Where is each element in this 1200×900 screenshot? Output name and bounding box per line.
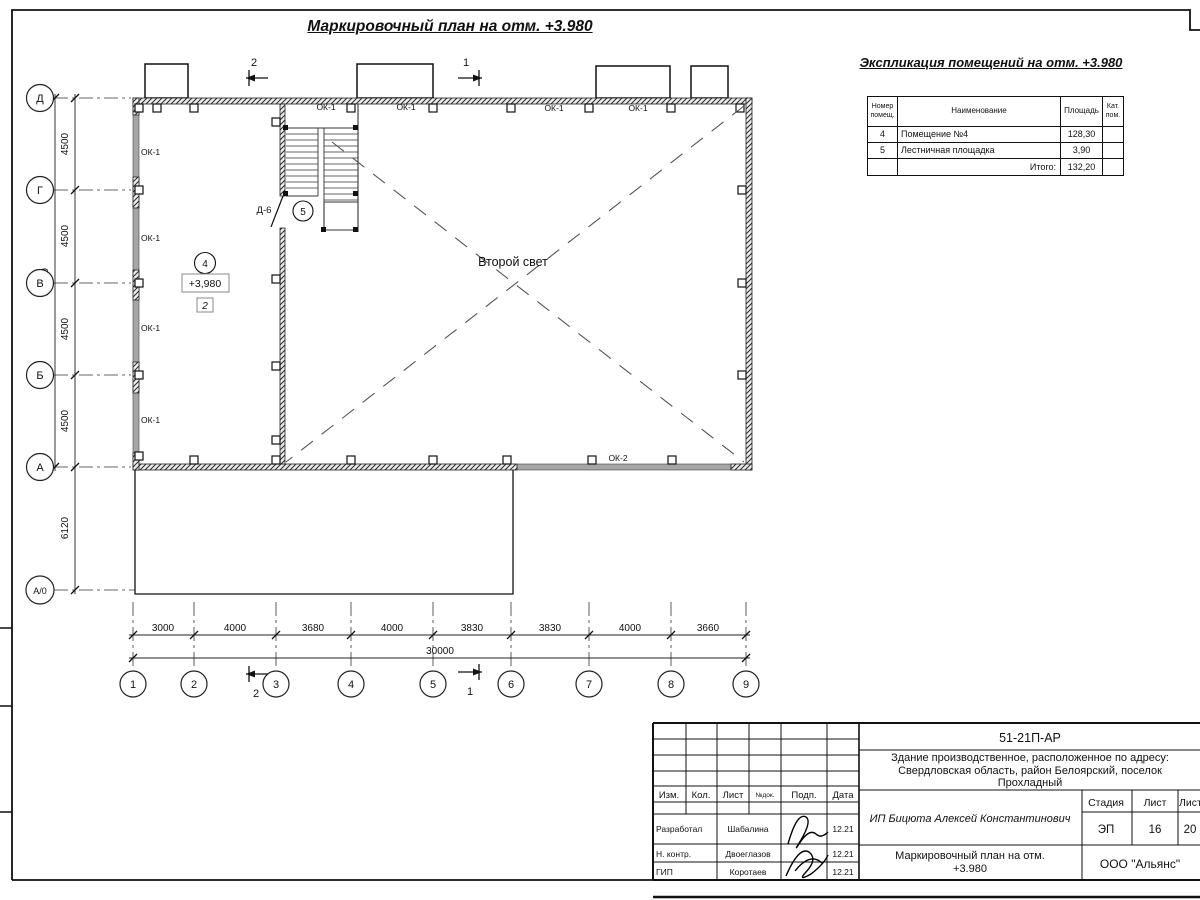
dim-col: 4000 — [224, 623, 247, 634]
table-cell — [1103, 127, 1123, 143]
doc-number: 51-21П-АР — [999, 731, 1061, 745]
ok1-label: ОК-1 — [141, 323, 160, 333]
stamp-col-ndok: №док. — [755, 792, 774, 799]
explication-table: Номер помещ. Наименование Площадь Кат. п… — [867, 96, 1124, 176]
stamp-col-podp: Подп. — [791, 790, 816, 801]
axis-col-label: 7 — [586, 679, 592, 691]
dim-col: 3680 — [302, 623, 325, 634]
stamp-headers: Изм. Кол. Лист №док. Подп. Дата — [659, 790, 854, 801]
axis-col-label: 1 — [130, 679, 136, 691]
signature-scribbles — [786, 816, 828, 877]
dim-6120: 6120 — [60, 516, 71, 539]
axis-col-label: 2 — [191, 679, 197, 691]
dim-4500: 4500 — [60, 224, 71, 247]
table-cell: 3,90 — [1061, 143, 1103, 159]
sheet-label: Лист — [1144, 797, 1167, 809]
elevation-mark: +3,980 — [189, 278, 222, 290]
axis-row-label: В — [36, 278, 43, 290]
ok1-label: ОК-1 — [141, 415, 160, 425]
stage-label: Стадия — [1088, 797, 1124, 809]
table-cell: Лестничная площадка — [898, 143, 1061, 159]
explication-title: Экспликация помещений на отм. +3.980 — [845, 55, 1137, 70]
dim-4500: 4500 — [60, 317, 71, 340]
stair-steps — [286, 134, 358, 200]
axis-row-label: Д — [36, 93, 44, 105]
door-leaf — [271, 196, 283, 227]
table-cell — [1103, 143, 1123, 159]
col-header-cat: Кат. пом. — [1103, 97, 1123, 127]
door-mark-label: Д-6 — [257, 205, 272, 216]
roof-projections — [145, 64, 728, 98]
stamp-col-list: Лист — [723, 790, 744, 801]
sheet-value: 16 — [1149, 824, 1162, 836]
signer-role: ГИП — [656, 867, 673, 877]
project-address: Здание производственное, расположенное п… — [880, 752, 1180, 790]
axis-col-label: 6 — [508, 679, 514, 691]
section2-label: 2 — [251, 57, 257, 69]
client-name: ИП Бицюта Алексей Константинович — [870, 813, 1071, 825]
dim-col: 4000 — [619, 623, 642, 634]
signer-name: Шабалина — [727, 824, 768, 834]
drawing-sheet: Второй свет ОК-1 ОК-1 ОК-1 ОК-1 ОК-1 ОК-… — [0, 0, 1200, 900]
table-cell: 5 — [868, 143, 898, 159]
total-label: Итого: — [898, 159, 1061, 175]
signer-date: 12.21 — [832, 849, 854, 859]
axis-bubbles-rows: Д Г В Б А А/0 — [26, 85, 54, 605]
axis-col-label: 8 — [668, 679, 674, 691]
dim-4500: 4500 — [60, 409, 71, 432]
dimension-lines — [55, 94, 750, 658]
lower-extension-outline — [135, 470, 513, 594]
col-header-area: Площадь — [1061, 97, 1103, 127]
signer-name: Двоеглазов — [725, 849, 771, 859]
ok1-label: ОК-1 — [544, 103, 563, 113]
signer-rows: Разработал Шабалина 12.21 Н. контр. Двое… — [656, 824, 854, 877]
dim-col: 3830 — [461, 623, 484, 634]
axis-lines — [54, 98, 746, 670]
axis-row-label: Г — [37, 185, 43, 197]
signer-role: Н. контр. — [656, 849, 691, 859]
stamp-col-data: Дата — [832, 790, 854, 801]
company-name: ООО "Альянс" — [1100, 857, 1180, 871]
ok1-label: ОК-1 — [628, 103, 647, 113]
axis-col-label: 9 — [743, 679, 749, 691]
sheets-value: 20 — [1184, 824, 1197, 836]
table-cell — [1103, 159, 1123, 175]
signer-date: 12.21 — [832, 824, 854, 834]
drawing-title: Маркировочный план на отм. +3.980 — [882, 850, 1058, 876]
table-cell: 4 — [868, 127, 898, 143]
stamp-col-izm: Изм. — [659, 790, 679, 801]
dim-4500: 4500 — [60, 132, 71, 155]
room5-mark: 5 — [293, 201, 313, 221]
stamp-col-kol: Кол. — [692, 790, 711, 801]
section1-label: 1 — [467, 686, 473, 698]
room4-number: 4 — [202, 259, 208, 270]
ok1-label: ОК-1 — [141, 147, 160, 157]
col-header-num: Номер помещ. — [868, 97, 898, 127]
ok1-label: ОК-1 — [316, 102, 335, 112]
second-light-label: Второй свет — [478, 255, 548, 269]
dimension-labels: 4500 4500 4500 4500 18000 6120 3000 4000… — [40, 132, 720, 657]
ok1-label: ОК-1 — [396, 102, 415, 112]
axis-row-label: А — [36, 462, 44, 474]
section1-label: 1 — [463, 57, 469, 69]
dim-col: 3660 — [697, 623, 720, 634]
dimension-ticks — [51, 94, 750, 662]
axis-col-label: 3 — [273, 679, 279, 691]
total-value: 132,20 — [1061, 159, 1103, 175]
signer-role: Разработал — [656, 824, 702, 834]
stage-value: ЭП — [1098, 824, 1115, 836]
sheets-label: Листов — [1179, 797, 1200, 809]
col-header-name: Наименование — [898, 97, 1061, 127]
ok2-label: ОК-2 — [608, 453, 627, 463]
axis-col-label: 5 — [430, 679, 436, 691]
table-cell: 128,30 — [1061, 127, 1103, 143]
dim-col: 4000 — [381, 623, 404, 634]
table-cell — [868, 159, 898, 175]
room5-number: 5 — [300, 207, 306, 218]
page-title: Маркировочный план на отм. +3.980 — [280, 18, 620, 36]
axis-row-label: Б — [36, 370, 43, 382]
signer-date: 12.21 — [832, 867, 854, 877]
dim-col: 3830 — [539, 623, 562, 634]
dim-col: 3000 — [152, 623, 175, 634]
section2-label: 2 — [253, 688, 259, 700]
dim-30000: 30000 — [426, 646, 454, 657]
axis-bubbles-cols: 1 2 3 4 5 6 7 8 9 — [120, 671, 759, 697]
axis-row-label: А/0 — [33, 586, 47, 596]
floor-type-mark: 2 — [201, 301, 208, 312]
room4-marks: 4 +3,980 2 — [182, 253, 229, 313]
ok1-label: ОК-1 — [141, 233, 160, 243]
table-cell: Помещение №4 — [898, 127, 1061, 143]
signer-name: Коротаев — [730, 867, 767, 877]
void-cross — [286, 106, 744, 462]
axis-col-label: 4 — [348, 679, 354, 691]
